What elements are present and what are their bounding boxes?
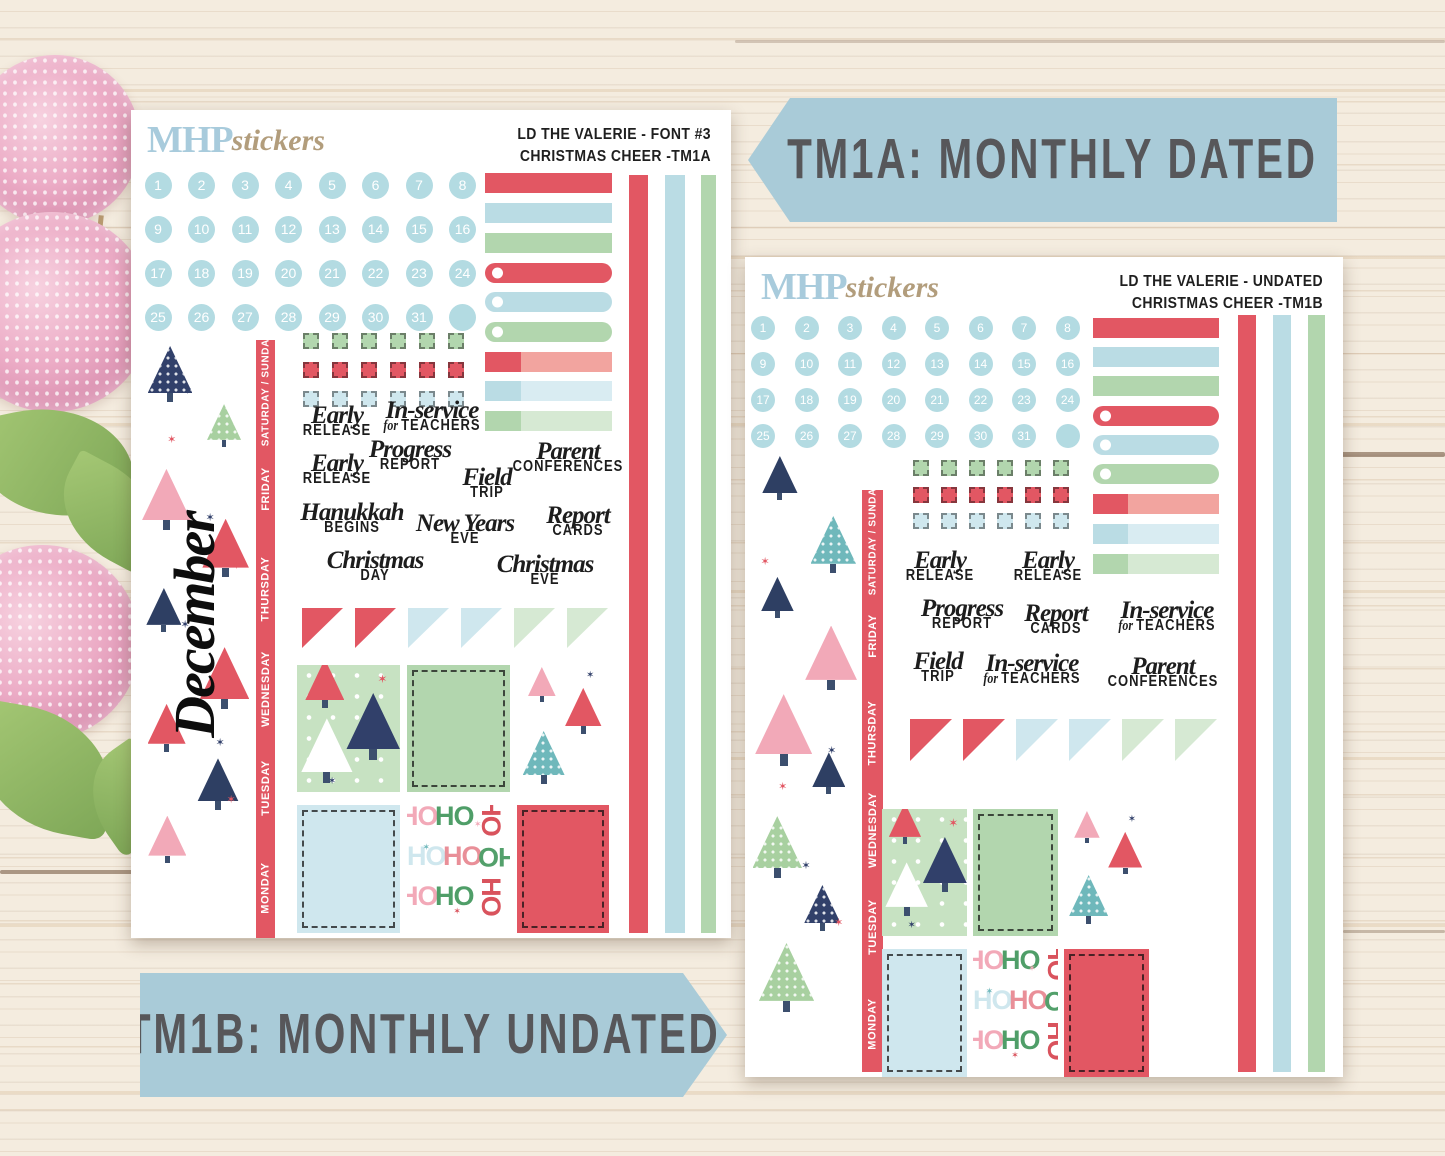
- phrase-sticker-in-service: In-servicefor TEACHERS: [383, 397, 480, 433]
- pennant-sticker-red: [355, 608, 396, 648]
- bar-dark-segment: [485, 411, 521, 431]
- date-sticker: 19: [232, 260, 259, 287]
- phrase-sticker-progress-report: ProgressREPORT: [921, 595, 1003, 630]
- product-photo: TM1A: MONTHLY DATED TM1B: MONTHLY UNDATE…: [0, 0, 1445, 1156]
- tree-trunk: [581, 726, 586, 734]
- weekday-label: FRIDAY: [256, 440, 275, 540]
- weekday-label-text: WEDNESDAY: [867, 792, 879, 868]
- flower-pompom: [0, 212, 152, 412]
- date-sticker: 16: [1056, 352, 1080, 376]
- washi-strip-sticker-blue: [1273, 315, 1291, 1072]
- tree-trunk: [904, 907, 910, 916]
- tree-illustration: [148, 816, 186, 865]
- date-sticker: 1: [145, 172, 172, 199]
- phrase-caps-line: EVE: [416, 529, 514, 547]
- tree-illustration: [889, 809, 921, 844]
- mhp-stickers-logo: MHPstickers: [147, 118, 325, 162]
- phrase-caps-line: CONFERENCES: [1108, 672, 1219, 690]
- weekday-label-text: TUESDAY: [260, 761, 272, 817]
- star-accent: ✶: [986, 987, 994, 996]
- phrase-caps-line: for TEACHERS: [983, 668, 1080, 687]
- date-sticker: 12: [882, 352, 906, 376]
- checkbox-sticker-green: [997, 460, 1013, 476]
- tree-illustration: [1069, 875, 1108, 925]
- tree-trunk: [820, 923, 825, 930]
- wood-plank-seam: [0, 870, 140, 874]
- wood-plank-seam: [1337, 452, 1445, 457]
- pennant-sticker-red: [910, 719, 952, 761]
- tree-illustration: [1108, 832, 1142, 876]
- date-sticker: 15: [1012, 352, 1036, 376]
- checkbox-sticker-red: [997, 487, 1013, 503]
- tree-foliage: [528, 667, 556, 696]
- date-sticker: 20: [882, 388, 906, 412]
- checkbox-sticker-green: [913, 460, 929, 476]
- weekday-label-text: THURSDAY: [867, 700, 879, 765]
- header-bar-sticker-blue-duo: [485, 381, 612, 401]
- checkbox-sticker-blue: [913, 513, 929, 529]
- date-sticker: 18: [188, 260, 215, 287]
- tree-illustration: [923, 837, 967, 894]
- date-sticker: 21: [925, 388, 949, 412]
- phrase-sticker-parent-conferences: ParentCONFERENCES: [1108, 653, 1219, 688]
- tree-foliage: [346, 693, 400, 749]
- date-sticker: 7: [1012, 316, 1036, 340]
- tree-pattern-column: ✶✶✶✶✶: [749, 452, 859, 1070]
- phrase-sticker-early-release: EarlyRELEASE: [303, 450, 371, 485]
- phrase-caps-line: TRIP: [913, 667, 962, 685]
- date-sticker: 14: [969, 352, 993, 376]
- date-sticker: 9: [751, 352, 775, 376]
- tree-illustration: [885, 862, 928, 916]
- header-bar-sticker-green-tab: [1093, 464, 1219, 484]
- header-bar-sticker-blue-tab: [485, 292, 612, 312]
- phrase-sticker-christmas-eve: ChristmasEVE: [497, 551, 594, 586]
- fullbox-sticker-red-solid: [517, 805, 609, 933]
- tree-illustration: [755, 694, 812, 767]
- weekday-label-text: THURSDAY: [260, 557, 272, 622]
- checkbox-sticker-green: [941, 460, 957, 476]
- weekday-label: TUESDAY: [256, 739, 275, 839]
- weekday-label: WEDNESDAY: [862, 781, 883, 878]
- phrase-sticker-hanukkah-begins: HanukkahBEGINS: [300, 499, 403, 534]
- date-sticker: [449, 304, 476, 331]
- star-accent: ✶: [948, 817, 958, 829]
- weekday-label: SATURDAY / SUNDAY: [256, 340, 275, 440]
- dashed-inner-border: [1069, 954, 1144, 1072]
- bar-light-segment: [521, 352, 612, 372]
- star-accent: ✶: [232, 561, 241, 572]
- bar-light-segment: [1128, 524, 1219, 544]
- star-accent: ✶: [422, 843, 430, 852]
- tree-trunk: [322, 700, 327, 708]
- checkbox-sticker-red: [1025, 487, 1041, 503]
- fullbox-sticker-tree-decor: ✶: [1064, 809, 1149, 936]
- star-accent: ✶: [328, 777, 336, 787]
- tree-foliage: [1074, 811, 1100, 838]
- date-sticker: 10: [795, 352, 819, 376]
- washi-strip-sticker-blue: [665, 175, 685, 933]
- star-accent: ✶: [1028, 964, 1036, 973]
- tree-trunk: [826, 787, 831, 794]
- hoho-word: HO: [407, 881, 438, 912]
- bar-light-segment: [1128, 554, 1219, 574]
- checkbox-sticker-green: [361, 333, 377, 349]
- dashed-inner-border: [302, 810, 395, 928]
- hoho-word: HO: [479, 841, 510, 872]
- bar-hole-dot: [1100, 440, 1111, 451]
- tree-foliage: [812, 752, 845, 787]
- tree-trunk: [1085, 838, 1089, 843]
- phrase-caps-line: DAY: [327, 566, 424, 584]
- star-accent: ✶: [474, 820, 482, 829]
- tree-illustration: [305, 665, 344, 709]
- tree-foliage: [305, 665, 344, 700]
- header-bar-sticker-blue-duo: [1093, 524, 1219, 544]
- washi-strip-sticker-green: [1308, 315, 1325, 1072]
- weekday-bar: SATURDAY / SUNDAYFRIDAYTHURSDAYWEDNESDAY…: [256, 340, 275, 938]
- weekday-bar: SATURDAY / SUNDAYFRIDAYTHURSDAYWEDNESDAY…: [862, 490, 883, 1072]
- checkbox-sticker-red: [390, 362, 406, 378]
- checkbox-sticker-blue: [969, 513, 985, 529]
- fullbox-sticker-hoho: HOHOHOHOHOHOHOHOHO✶✶✶: [407, 805, 510, 933]
- date-sticker: 31: [1012, 424, 1036, 448]
- checkbox-sticker-red: [303, 362, 319, 378]
- date-sticker: 8: [449, 172, 476, 199]
- flower-pompom: [0, 55, 140, 225]
- logo-stickers: stickers: [232, 124, 325, 157]
- mhp-stickers-logo: MHPstickers: [761, 265, 939, 309]
- star-accent: ✶: [761, 557, 770, 568]
- header-bar-sticker-red-duo: [485, 352, 612, 372]
- fullbox-sticker-green-solid: [407, 665, 510, 792]
- tree-trunk: [830, 564, 836, 573]
- weekday-label: FRIDAY: [862, 587, 883, 684]
- date-sticker: 28: [882, 424, 906, 448]
- date-sticker: 4: [275, 172, 302, 199]
- checkbox-sticker-green: [969, 460, 985, 476]
- bar-hole-dot: [492, 327, 503, 338]
- checkbox-sticker-green: [390, 333, 406, 349]
- date-sticker: 26: [188, 304, 215, 331]
- date-sticker: 12: [275, 216, 302, 243]
- tree-trunk: [540, 696, 544, 702]
- dashed-inner-border: [887, 954, 962, 1072]
- dashed-inner-border: [522, 810, 604, 928]
- hoho-word: HO: [407, 805, 438, 832]
- weekday-label-text: FRIDAY: [260, 468, 272, 512]
- date-sticker: 10: [188, 216, 215, 243]
- phrase-pre-word: for: [983, 670, 1001, 687]
- phrase-sticker-field-trip: FieldTRIP: [462, 464, 511, 499]
- tree-illustration: [301, 718, 353, 784]
- date-sticker: [1056, 424, 1080, 448]
- phrase-pre-word: for: [383, 417, 401, 434]
- date-sticker: 20: [275, 260, 302, 287]
- phrase-caps-line: for TEACHERS: [1118, 615, 1215, 634]
- bar-hole-dot: [492, 297, 503, 308]
- bar-hole-dot: [1100, 411, 1111, 422]
- phrase-caps-line: for TEACHERS: [383, 415, 480, 434]
- star-accent: ✶: [1011, 1051, 1019, 1060]
- tree-foliage: [565, 688, 602, 727]
- date-sticker: 5: [319, 172, 346, 199]
- weekday-label-text: MONDAY: [260, 862, 272, 913]
- date-sticker: 3: [838, 316, 862, 340]
- date-sticker: 7: [406, 172, 433, 199]
- phrase-sticker-report-cards: ReportCARDS: [546, 502, 609, 537]
- weekday-label: WEDNESDAY: [256, 639, 275, 739]
- date-sticker: 17: [751, 388, 775, 412]
- sticker-sheet-tm1b: MHPstickers LD THE VALERIE - UNDATED CHR…: [745, 257, 1343, 1077]
- tree-foliage: [885, 862, 928, 907]
- date-sticker: 2: [795, 316, 819, 340]
- tree-trunk: [167, 393, 173, 402]
- checkbox-sticker-green: [332, 333, 348, 349]
- date-sticker: 13: [925, 352, 949, 376]
- date-sticker: 15: [406, 216, 433, 243]
- bar-hole-dot: [492, 268, 503, 279]
- tree-foliage: [753, 816, 802, 868]
- hoho-word: HO: [973, 1025, 1004, 1056]
- tree-trunk: [942, 883, 948, 892]
- date-sticker: 13: [319, 216, 346, 243]
- tree-foliage: [1108, 832, 1142, 868]
- header-bar-sticker-blue-plain: [1093, 347, 1219, 367]
- month-script-december: December: [160, 435, 230, 815]
- phrase-sticker-parent-conferences: ParentCONFERENCES: [513, 438, 624, 473]
- sheet-a-header: LD THE VALERIE - FONT #3 CHRISTMAS CHEER…: [517, 122, 711, 167]
- phrase-sticker-field-trip: FieldTRIP: [913, 648, 962, 683]
- bar-hole-dot: [1100, 469, 1111, 480]
- sticker-sheet-tm1a: MHPstickers LD THE VALERIE - FONT #3 CHR…: [131, 110, 731, 938]
- phrase-sticker-early-release: EarlyRELEASE: [303, 402, 371, 437]
- tree-trunk: [903, 837, 908, 844]
- phrase-caps-line: CARDS: [1024, 619, 1087, 637]
- hoho-word: HO: [435, 805, 474, 832]
- date-sticker: 11: [838, 352, 862, 376]
- star-accent: ✶: [586, 671, 594, 681]
- header-bar-sticker-green-tab: [485, 322, 612, 342]
- date-sticker: 9: [145, 216, 172, 243]
- header-bar-sticker-red-tab: [485, 263, 612, 283]
- date-sticker: 1: [751, 316, 775, 340]
- bar-dark-segment: [1093, 524, 1128, 544]
- hoho-word: HO: [1041, 949, 1058, 980]
- tree-trunk: [165, 856, 170, 864]
- wood-plank-seam: [735, 40, 1445, 43]
- date-sticker: 25: [145, 304, 172, 331]
- star-accent: ✶: [908, 921, 916, 931]
- hoho-word: HO: [973, 949, 1004, 976]
- phrase-caps-line: RELEASE: [1014, 566, 1082, 584]
- tree-trunk: [780, 754, 788, 766]
- star-accent: ✶: [183, 386, 192, 397]
- tree-trunk: [369, 749, 376, 760]
- phrase-caps-line: REPORT: [369, 455, 451, 473]
- weekday-label-text: SATURDAY / SUNDAY: [260, 333, 271, 447]
- pennant-sticker-blue: [461, 608, 502, 648]
- fullbox-sticker-blue-solid: [297, 805, 400, 933]
- phrase-sticker-early-release: EarlyRELEASE: [906, 547, 974, 582]
- fullbox-sticker-tree-decor: ✶: [517, 665, 609, 792]
- dashed-inner-border: [412, 670, 505, 787]
- pennant-sticker-blue: [1016, 719, 1058, 761]
- header-bar-sticker-green-duo: [485, 411, 612, 431]
- weekday-label-text: WEDNESDAY: [260, 651, 272, 727]
- header-bar-sticker-red-duo: [1093, 494, 1219, 514]
- pennant-sticker-green: [567, 608, 608, 648]
- pennant-sticker-red: [963, 719, 1005, 761]
- tree-foliage: [762, 456, 797, 493]
- date-sticker: 16: [449, 216, 476, 243]
- washi-strip-sticker-red: [629, 175, 648, 933]
- weekday-label-text: SATURDAY / SUNDAY: [867, 482, 878, 596]
- checkbox-sticker-green: [1025, 460, 1041, 476]
- tree-illustration: [1074, 811, 1100, 844]
- phrase-caps-line: TRIP: [462, 483, 511, 501]
- weekday-label-text: MONDAY: [867, 998, 879, 1049]
- weekday-label: THURSDAY: [256, 539, 275, 639]
- pennant-sticker-blue: [408, 608, 449, 648]
- tree-trunk: [1086, 916, 1091, 924]
- header-bar-sticker-red-tab: [1093, 406, 1219, 426]
- phrase-caps-line: CONFERENCES: [513, 457, 624, 475]
- phrase-caps-line: RELEASE: [303, 469, 371, 487]
- star-accent: ✶: [801, 861, 810, 872]
- sheet-b-header: LD THE VALERIE - UNDATED CHRISTMAS CHEER…: [1119, 269, 1323, 314]
- phrase-sticker-progress-report: ProgressREPORT: [369, 436, 451, 471]
- tree-illustration: [811, 516, 856, 574]
- banner-monthly-dated: TM1A: MONTHLY DATED: [748, 98, 1337, 222]
- bar-light-segment: [521, 411, 612, 431]
- tree-illustration: [759, 943, 814, 1014]
- phrase-sticker-in-service: In-servicefor TEACHERS: [983, 650, 1080, 686]
- phrase-caps-line: BEGINS: [300, 518, 403, 536]
- fullbox-sticker-tree-pattern: ✶✶: [297, 665, 400, 792]
- washi-strip-sticker-green: [701, 175, 716, 933]
- phrase-caps-line: CARDS: [546, 521, 609, 539]
- checkbox-sticker-red: [969, 487, 985, 503]
- bar-light-segment: [1128, 494, 1219, 514]
- tree-foliage: [755, 694, 812, 754]
- weekday-label: MONDAY: [256, 838, 275, 938]
- phrase-caps-line: RELEASE: [303, 421, 371, 439]
- tree-trunk: [777, 493, 782, 500]
- banner-monthly-dated-label: TM1A: MONTHLY DATED: [787, 128, 1318, 192]
- banner-monthly-undated: TM1B: MONTHLY UNDATED: [140, 973, 727, 1097]
- phrase-sticker-in-service: In-servicefor TEACHERS: [1118, 597, 1215, 633]
- hoho-word: HO: [1009, 985, 1048, 1016]
- tree-trunk: [541, 775, 547, 784]
- checkbox-sticker-blue: [997, 513, 1013, 529]
- phrase-sticker-christmas-day: ChristmasDAY: [327, 547, 424, 582]
- date-sticker: 6: [362, 172, 389, 199]
- tree-trunk: [774, 868, 781, 878]
- star-accent: ✶: [778, 782, 787, 793]
- pennant-sticker-blue: [1069, 719, 1111, 761]
- date-sticker: 28: [275, 304, 302, 331]
- bar-dark-segment: [1093, 554, 1128, 574]
- tree-foliage: [301, 718, 353, 772]
- checkbox-sticker-red: [361, 362, 377, 378]
- date-sticker: 24: [1056, 388, 1080, 412]
- date-sticker: 27: [232, 304, 259, 331]
- hoho-word: HO: [1001, 1025, 1040, 1056]
- pennant-sticker-green: [514, 608, 555, 648]
- date-sticker: 14: [362, 216, 389, 243]
- dashed-inner-border: [978, 814, 1053, 931]
- phrase-sticker-new-years-eve: New YearsEVE: [416, 510, 514, 545]
- tree-foliage: [889, 809, 921, 837]
- phrase-sticker-early-release: EarlyRELEASE: [1014, 547, 1082, 582]
- star-accent: ✶: [834, 918, 843, 929]
- tree-illustration: [805, 626, 857, 692]
- date-sticker: 21: [319, 260, 346, 287]
- checkbox-sticker-green: [448, 333, 464, 349]
- checkbox-sticker-red: [1053, 487, 1069, 503]
- fullbox-sticker-hoho: HOHOHOHOHOHOHOHOHO✶✶✶: [973, 949, 1058, 1077]
- checkbox-sticker-blue: [1053, 513, 1069, 529]
- bar-dark-segment: [1093, 494, 1128, 514]
- bar-light-segment: [521, 381, 612, 401]
- tree-trunk: [775, 611, 780, 618]
- pennant-sticker-red: [302, 608, 343, 648]
- date-sticker: 19: [838, 388, 862, 412]
- tree-foliage: [523, 731, 565, 775]
- hoho-word: HO: [475, 877, 506, 916]
- hoho-word: HO: [443, 841, 482, 872]
- date-sticker: 5: [925, 316, 949, 340]
- date-sticker: 29: [319, 304, 346, 331]
- date-sticker: 23: [1012, 388, 1036, 412]
- phrase-pre-word: for: [1118, 617, 1136, 634]
- checkbox-sticker-red: [332, 362, 348, 378]
- checkbox-sticker-red: [913, 487, 929, 503]
- checkbox-sticker-blue: [941, 513, 957, 529]
- tree-illustration: [565, 688, 602, 735]
- tree-foliage: [923, 837, 967, 883]
- date-sticker: 18: [795, 388, 819, 412]
- date-sticker: 3: [232, 172, 259, 199]
- date-sticker: 22: [969, 388, 993, 412]
- header-bar-sticker-blue-tab: [1093, 435, 1219, 455]
- logo-stickers: stickers: [846, 271, 939, 304]
- checkbox-sticker-red: [419, 362, 435, 378]
- weekday-label: MONDAY: [862, 975, 883, 1072]
- date-sticker: 8: [1056, 316, 1080, 340]
- tree-trunk: [827, 680, 834, 691]
- date-sticker: 26: [795, 424, 819, 448]
- header-bar-sticker-red-plain: [1093, 318, 1219, 338]
- pennant-sticker-green: [1175, 719, 1217, 761]
- star-accent: ✶: [377, 673, 387, 685]
- hoho-word: HO: [1041, 1021, 1058, 1060]
- header-bar-sticker-green-duo: [1093, 554, 1219, 574]
- tree-trunk: [783, 1001, 791, 1012]
- phrase-caps-line: EVE: [497, 570, 594, 588]
- date-sticker: 11: [232, 216, 259, 243]
- tree-illustration: [528, 667, 556, 702]
- weekday-label: SATURDAY / SUNDAY: [862, 490, 883, 587]
- checkbox-sticker-red: [448, 362, 464, 378]
- fullbox-sticker-tree-pattern: ✶✶: [882, 809, 967, 936]
- weekday-label-text: FRIDAY: [867, 614, 879, 658]
- fullbox-sticker-red-solid: [1064, 949, 1149, 1077]
- wood-plank-seam: [1343, 930, 1445, 933]
- header-bar-sticker-red-plain: [485, 173, 612, 193]
- fullbox-sticker-green-solid: [973, 809, 1058, 936]
